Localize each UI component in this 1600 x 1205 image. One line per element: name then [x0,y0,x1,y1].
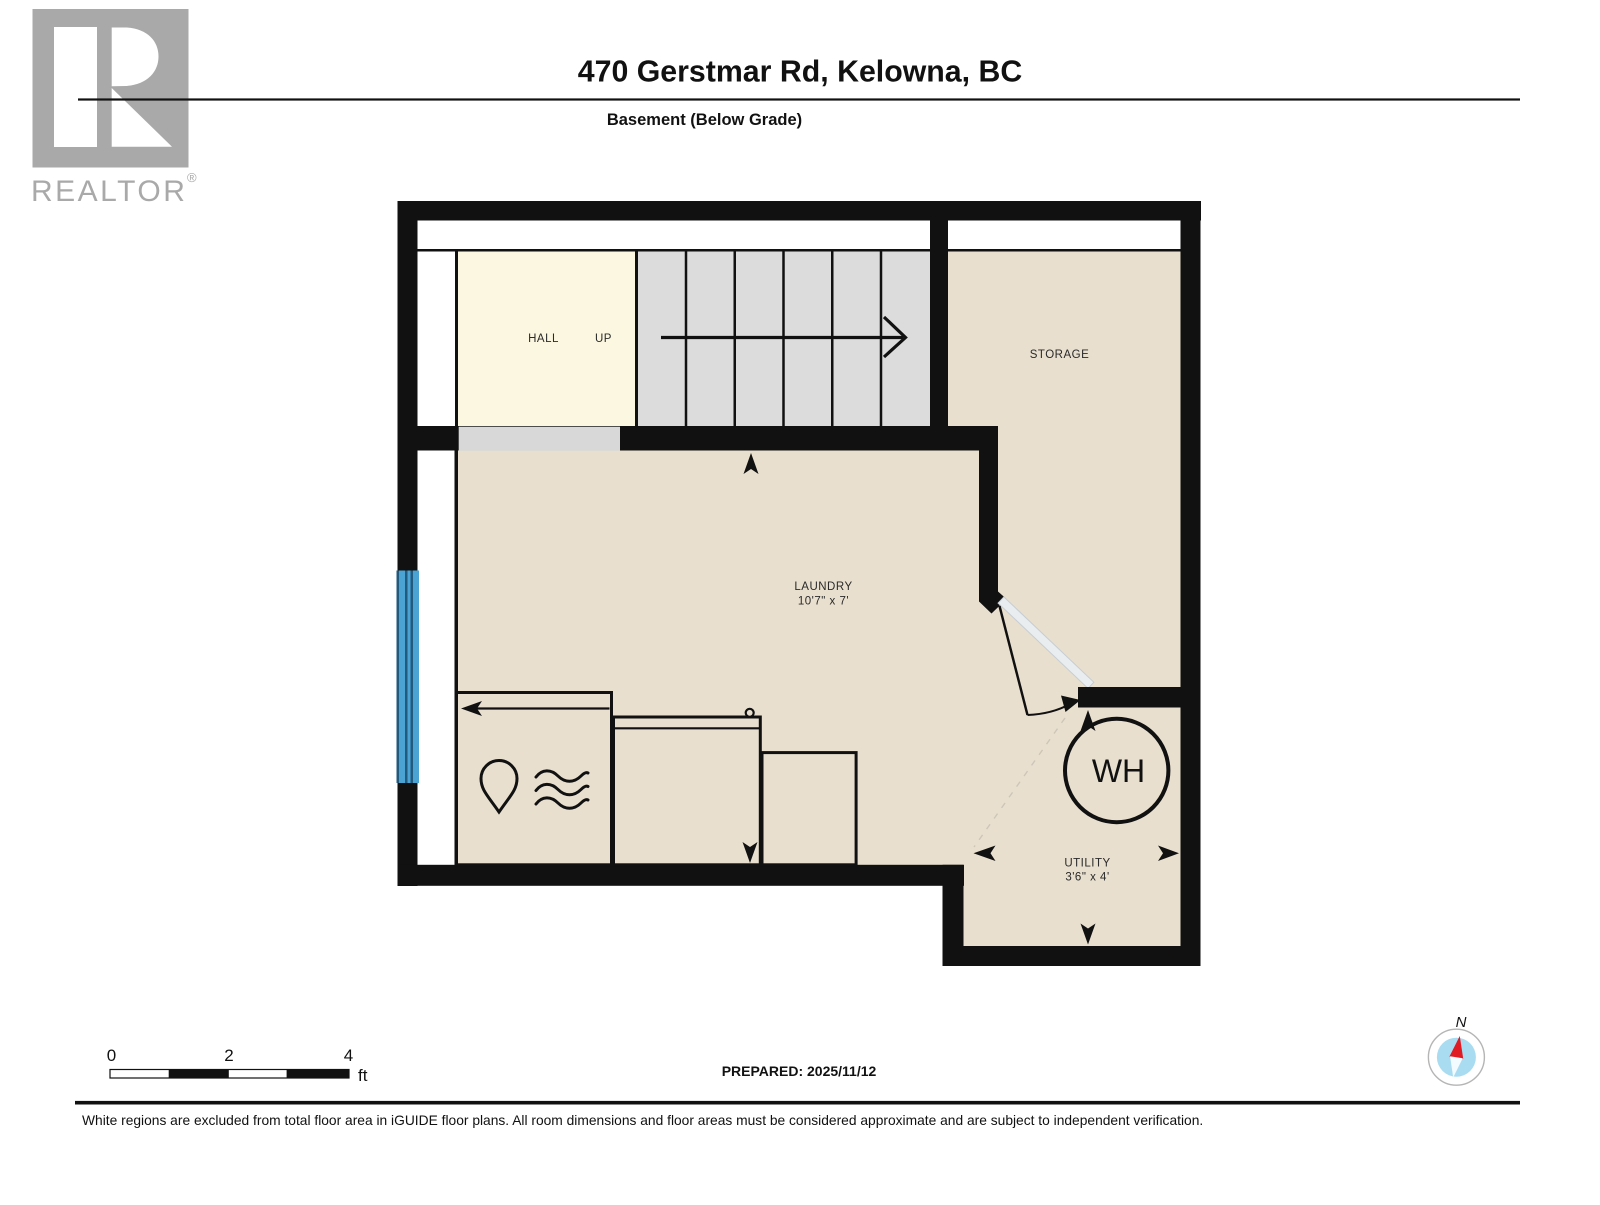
svg-text:STORAGE: STORAGE [1030,349,1090,361]
svg-text:4: 4 [344,1046,353,1065]
svg-text:®: ® [187,170,197,185]
svg-text:ft: ft [358,1066,368,1085]
svg-text:10'7" x 7': 10'7" x 7' [798,596,849,608]
svg-text:HALL: HALL [528,333,559,345]
svg-text:WH: WH [1092,753,1145,789]
svg-text:3'6" x 4': 3'6" x 4' [1065,872,1109,884]
svg-text:UP: UP [595,333,612,345]
svg-text:Basement (Below Grade): Basement (Below Grade) [607,111,802,129]
svg-text:N: N [1456,1014,1467,1031]
svg-text:2: 2 [224,1046,233,1065]
svg-text:UTILITY: UTILITY [1064,858,1110,870]
svg-text:0: 0 [107,1046,116,1065]
svg-text:470 Gerstmar Rd, Kelowna, BC: 470 Gerstmar Rd, Kelowna, BC [578,56,1023,89]
svg-text:White regions are excluded fro: White regions are excluded from total fl… [82,1113,1203,1128]
svg-text:PREPARED: 2025/11/12: PREPARED: 2025/11/12 [722,1063,877,1079]
svg-text:LAUNDRY: LAUNDRY [794,581,852,593]
svg-text:REALTOR: REALTOR [31,175,187,208]
